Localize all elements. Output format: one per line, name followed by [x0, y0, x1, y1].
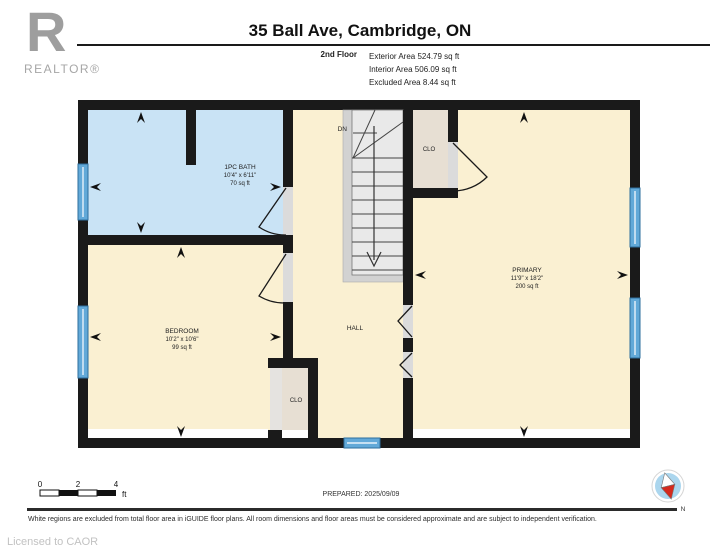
bedroom-name: BEDROOM: [165, 328, 199, 335]
closet-bottom-door: [270, 368, 282, 430]
closet-top-label: CLO: [423, 147, 436, 153]
bedroom-dims: 10'2" x 10'6": [166, 337, 199, 343]
bedroom-area: 99 sq ft: [172, 345, 192, 351]
license-text: Licensed to CAOR: [7, 536, 98, 548]
hall-label: HALL: [347, 325, 364, 332]
staircase: [343, 110, 403, 282]
bath-name: 1PC BATH: [224, 164, 256, 171]
floor-plan-drawing: 1PC BATH 10'4" x 6'11" 70 sq ft BEDROOM …: [0, 0, 720, 555]
disclaimer-text: White regions are excluded from total fl…: [28, 516, 688, 523]
prepared-date: PREPARED: 2025/09/09: [323, 491, 400, 498]
scale-bar: 0 2 4 ft: [38, 480, 127, 499]
primary-dims: 11'9" x 18'2": [511, 276, 543, 282]
scale-tick-0: 0: [38, 480, 43, 489]
scale-tick-4: 4: [114, 480, 119, 489]
floor-plan-page: R REALTOR® 35 Ball Ave, Cambridge, ON 2n…: [0, 0, 720, 555]
primary-name: PRIMARY: [512, 267, 542, 274]
closet-bottom-label: CLO: [290, 398, 303, 404]
primary-area: 200 sq ft: [515, 284, 538, 290]
compass-n-label: N: [681, 506, 686, 513]
bath-dims: 10'4" x 6'11": [224, 173, 256, 179]
bath-area: 70 sq ft: [230, 181, 250, 187]
scale-tick-2: 2: [76, 480, 81, 489]
stair-dn-label: DN: [338, 126, 348, 133]
scale-unit: ft: [122, 490, 127, 499]
compass-icon: N: [652, 470, 686, 513]
footer-divider: [27, 508, 677, 511]
